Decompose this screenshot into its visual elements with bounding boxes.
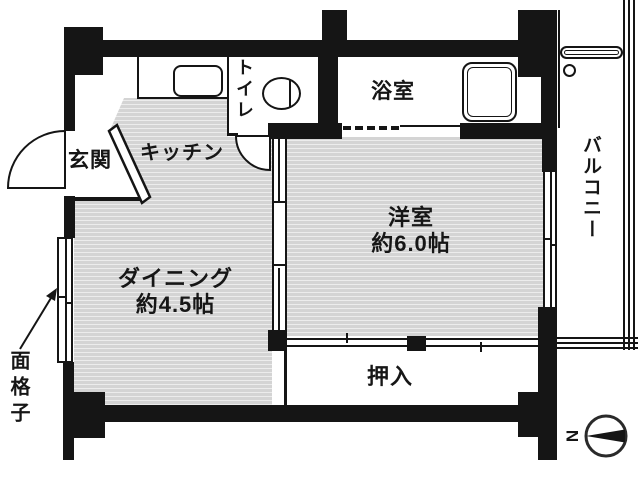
- kitchen-sink: [173, 65, 223, 97]
- closet-door-post: [407, 336, 426, 351]
- closet-door-tick-left: [346, 333, 348, 343]
- kitchen-counter-front: [137, 97, 229, 99]
- partition-panel-top: [278, 139, 280, 203]
- bathroom-door-dashed: [343, 126, 399, 130]
- lattice-label: 面格子: [5, 350, 31, 428]
- dining-label: ダイニング 約4.5帖: [98, 266, 253, 318]
- kitchen-counter-side: [137, 56, 139, 98]
- floor-plan: N 玄関 キッチン トイレ 浴室 洋室 約6.0帖 ダイニング 約4.5帖 押入…: [0, 0, 640, 477]
- genkan-label: 玄関: [68, 148, 112, 174]
- toilet-label: トイレ: [231, 58, 257, 121]
- dining-window-tick-a: [59, 296, 66, 298]
- balcony-rail-v1: [623, 0, 625, 350]
- compass-north-label: N: [563, 430, 582, 442]
- bathtub-inner: [467, 67, 512, 117]
- balcony-inner-edge: [558, 10, 560, 128]
- compass-circle: [586, 416, 626, 456]
- bathroom-opening-line: [400, 125, 460, 127]
- balcony-rail-v2: [628, 0, 630, 350]
- balcony-drain: [563, 64, 576, 77]
- toilet-bowl: [262, 77, 301, 110]
- balcony-rail-h2: [557, 342, 638, 344]
- balcony-label: バルコニー: [577, 135, 603, 240]
- western-room-window-tick-a: [545, 238, 551, 240]
- western-room-size: 約6.0帖: [336, 231, 486, 257]
- wall-right-mid: [542, 128, 557, 172]
- partition-tick-lower: [272, 264, 287, 266]
- partition-panel-bottom: [278, 268, 280, 332]
- dining-window-mullion: [65, 239, 67, 361]
- pillar-top-right: [518, 10, 557, 77]
- balcony-rail-h3: [557, 347, 638, 349]
- dining-name: ダイニング: [98, 266, 253, 292]
- wall-top: [64, 40, 557, 57]
- compass-needle: [586, 430, 625, 443]
- wall-westernroom-top-left: [268, 123, 342, 139]
- wall-partition-bottom-block: [268, 330, 287, 351]
- toilet-left-wall: [227, 56, 229, 136]
- dining-window-tick-b: [66, 302, 73, 304]
- wall-right-upper: [541, 77, 557, 128]
- partition-rail-left: [272, 137, 274, 332]
- balcony-rail-h1: [557, 337, 638, 339]
- western-room-name: 洋室: [336, 205, 486, 231]
- partition-rail-right: [285, 137, 287, 332]
- genkan-dining-step: [64, 197, 142, 201]
- wall-left-mid: [64, 196, 75, 238]
- closet-label: 押入: [367, 364, 413, 390]
- wall-left-upper: [64, 56, 75, 131]
- balcony-rail-v3: [633, 0, 635, 350]
- dining-size: 約4.5帖: [98, 292, 253, 318]
- western-room-window: [543, 170, 557, 309]
- toilet-bottom-wall: [227, 133, 238, 136]
- lattice-arrow-head: [46, 288, 57, 301]
- closet-left-wall: [284, 350, 287, 405]
- closet-door-tick-right: [480, 342, 482, 352]
- partition-tick-upper: [272, 201, 287, 203]
- entrance-door-swing: [8, 131, 65, 188]
- kitchen-label: キッチン: [140, 140, 224, 166]
- western-room-label: 洋室 約6.0帖: [336, 205, 486, 257]
- lattice-arrow-line: [20, 293, 54, 349]
- wall-westernroom-top-right: [460, 123, 543, 139]
- bathroom-label: 浴室: [371, 79, 415, 105]
- wall-bottom: [100, 405, 538, 422]
- western-room-window-tick-b: [551, 244, 557, 246]
- dining-window: [57, 237, 73, 363]
- wall-block-bottom-right: [518, 392, 538, 437]
- wall-right-lower: [538, 307, 557, 460]
- balcony-partition-panel: [560, 46, 623, 59]
